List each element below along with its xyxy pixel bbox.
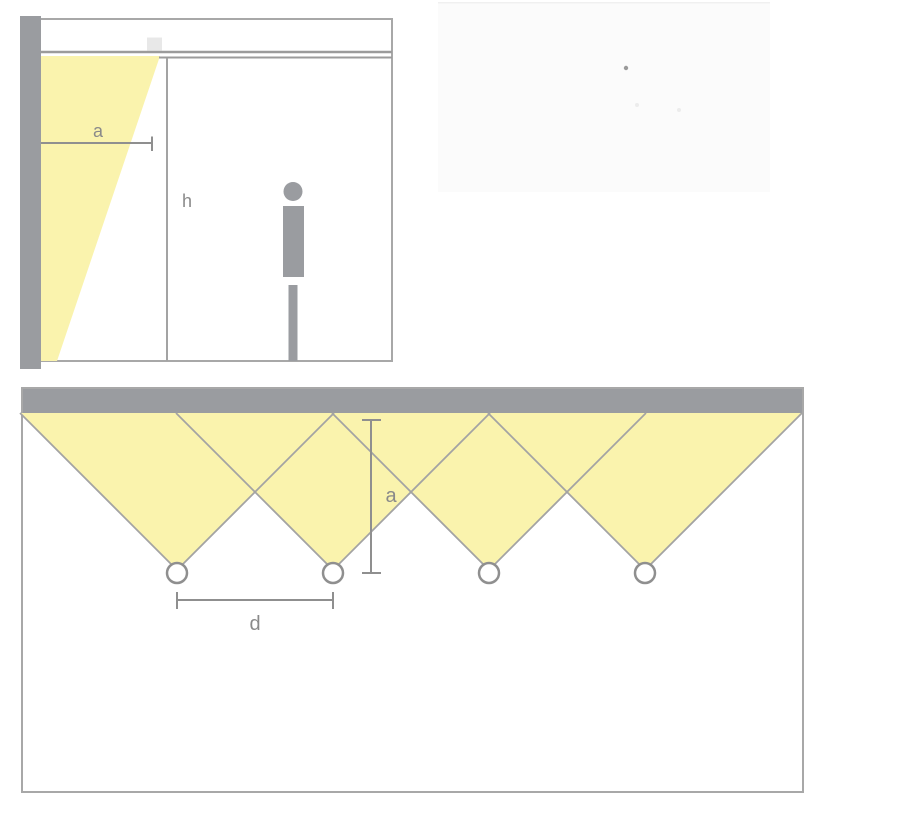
plan-wall (23, 389, 802, 413)
person-leg (289, 285, 298, 361)
section-height-label: h (182, 191, 192, 211)
section-wall (20, 16, 41, 369)
lighting-layout-diagram: a h (0, 0, 900, 815)
photo-faint-dot (635, 103, 639, 107)
person-torso (283, 206, 304, 277)
person-figure (283, 182, 304, 361)
plan-setback-label: a (385, 485, 397, 507)
photo-background (438, 2, 770, 192)
photo-top-edge (438, 2, 770, 4)
product-photo-placeholder (438, 2, 770, 192)
plan-view: a d (20, 388, 803, 792)
photo-faint-dot (677, 108, 681, 112)
section-setback-label: a (93, 121, 104, 141)
person-head (284, 182, 303, 201)
photo-detail-dot (624, 66, 628, 70)
plan-spacing-label: d (249, 613, 260, 635)
luminaire-circle (635, 563, 655, 583)
section-view: a h (20, 16, 392, 369)
luminaire-circle (167, 563, 187, 583)
luminaire-circle (479, 563, 499, 583)
luminaire-circle (323, 563, 343, 583)
section-recessed-luminaire (147, 38, 162, 51)
section-light-cone (41, 56, 160, 361)
